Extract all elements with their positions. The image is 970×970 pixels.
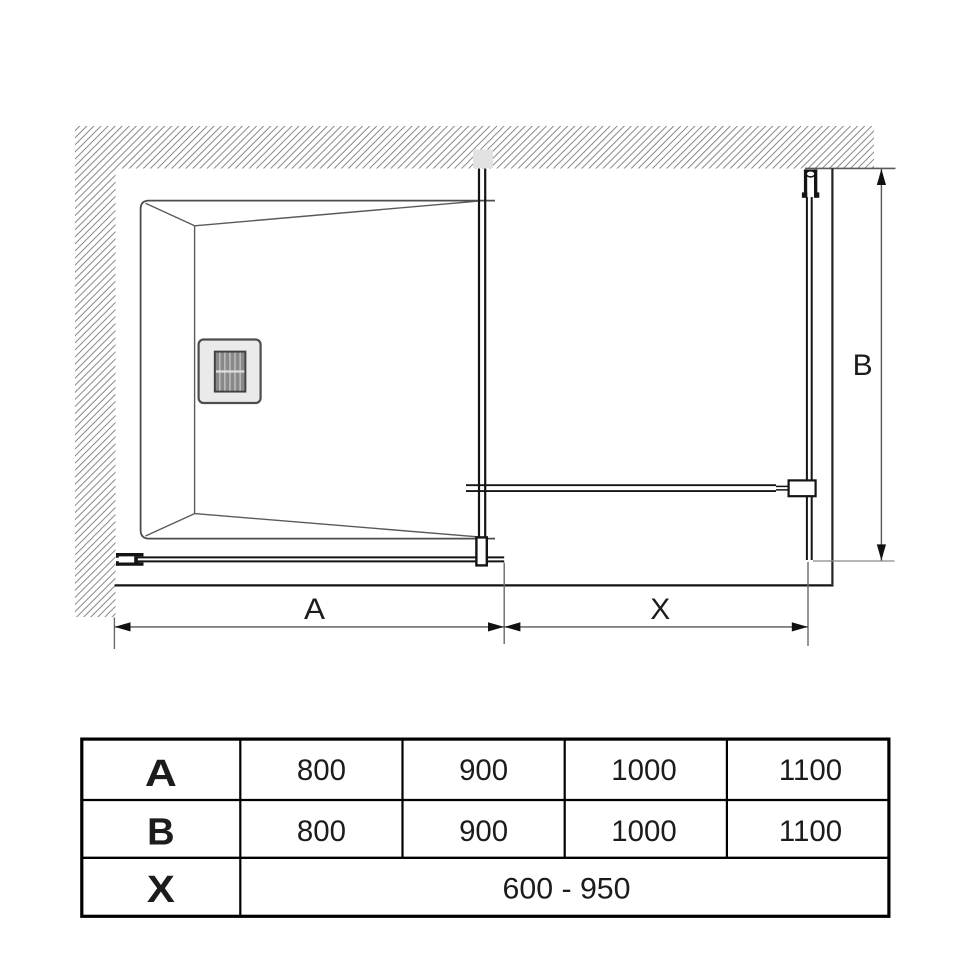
svg-text:1100: 1100 — [779, 754, 842, 787]
svg-text:800: 800 — [297, 815, 346, 848]
svg-text:X: X — [650, 593, 670, 626]
svg-text:900: 900 — [459, 754, 508, 787]
svg-text:1000: 1000 — [611, 754, 676, 787]
svg-text:B: B — [147, 812, 174, 854]
svg-text:800: 800 — [297, 754, 346, 787]
svg-text:A: A — [145, 753, 177, 795]
svg-text:600 - 950: 600 - 950 — [503, 872, 631, 905]
svg-text:900: 900 — [459, 815, 508, 848]
svg-text:B: B — [853, 349, 873, 382]
svg-text:1000: 1000 — [611, 815, 676, 848]
svg-text:1100: 1100 — [779, 815, 842, 848]
svg-text:X: X — [147, 869, 176, 911]
svg-text:A: A — [304, 593, 325, 626]
